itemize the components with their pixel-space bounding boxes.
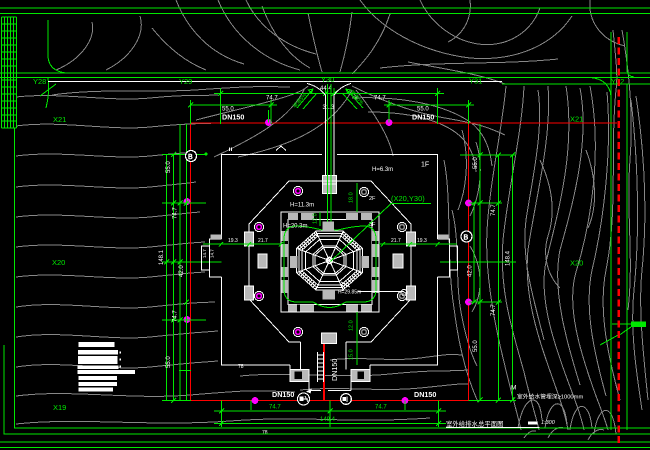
svg-text:室外给排水总平面图: 室外给排水总平面图 bbox=[446, 419, 504, 428]
svg-text:74.7: 74.7 bbox=[173, 310, 179, 322]
svg-text:Y29: Y29 bbox=[179, 77, 192, 86]
svg-text:149.4: 149.4 bbox=[320, 417, 336, 423]
svg-text:74.7: 74.7 bbox=[375, 405, 387, 411]
svg-text:Y28: Y28 bbox=[33, 77, 46, 86]
svg-text:78: 78 bbox=[262, 430, 268, 436]
svg-text:B: B bbox=[464, 235, 469, 242]
svg-text:148.4: 148.4 bbox=[506, 250, 512, 266]
svg-text:2F: 2F bbox=[369, 196, 376, 202]
svg-text:X19: X19 bbox=[53, 403, 66, 412]
svg-text:74.7: 74.7 bbox=[491, 304, 497, 316]
svg-text:12.0: 12.0 bbox=[313, 213, 319, 224]
svg-text:42.0: 42.0 bbox=[468, 265, 474, 277]
svg-text:DN150: DN150 bbox=[222, 113, 244, 122]
svg-text:X20: X20 bbox=[570, 259, 583, 268]
svg-text:148.1: 148.1 bbox=[159, 249, 165, 265]
svg-text:1:300: 1:300 bbox=[541, 420, 556, 426]
svg-text:19.3: 19.3 bbox=[228, 238, 238, 244]
svg-text:H=11.3m: H=11.3m bbox=[290, 203, 314, 209]
svg-text:55.0: 55.0 bbox=[166, 161, 172, 173]
svg-text:X20: X20 bbox=[52, 258, 65, 267]
svg-text:74.7: 74.7 bbox=[374, 96, 386, 102]
svg-text:Y30: Y30 bbox=[321, 75, 334, 84]
svg-text:42.0: 42.0 bbox=[179, 265, 185, 277]
svg-text:X21: X21 bbox=[53, 115, 66, 124]
svg-text:室外给水管埋深≥1000mm: 室外给水管埋深≥1000mm bbox=[517, 393, 583, 401]
svg-text:1F: 1F bbox=[421, 162, 429, 169]
svg-text:Y31: Y31 bbox=[469, 77, 482, 86]
svg-text:12.0: 12.0 bbox=[349, 320, 355, 331]
svg-text:(X20,Y30): (X20,Y30) bbox=[391, 194, 425, 203]
svg-text:19.3: 19.3 bbox=[417, 238, 427, 244]
svg-text:55.0: 55.0 bbox=[417, 107, 429, 113]
svg-text:74.7: 74.7 bbox=[269, 405, 281, 411]
svg-text:74.7: 74.7 bbox=[173, 207, 179, 219]
svg-text:14.7: 14.7 bbox=[202, 249, 207, 258]
svg-text:55.0: 55.0 bbox=[166, 356, 172, 368]
svg-text:21.7: 21.7 bbox=[391, 238, 401, 244]
svg-text:31.3: 31.3 bbox=[323, 105, 335, 111]
svg-text:74.7: 74.7 bbox=[491, 204, 497, 216]
svg-text:55.0: 55.0 bbox=[473, 340, 479, 352]
svg-text:18.0: 18.0 bbox=[349, 192, 355, 203]
svg-text:14.7: 14.7 bbox=[210, 249, 215, 258]
svg-text:74.7: 74.7 bbox=[266, 96, 278, 102]
svg-text:X21: X21 bbox=[570, 115, 583, 124]
svg-text:DN150: DN150 bbox=[414, 390, 436, 399]
svg-text:55.0: 55.0 bbox=[473, 157, 479, 169]
svg-text:H=29.85m: H=29.85m bbox=[338, 290, 361, 296]
svg-text:H=6.3m: H=6.3m bbox=[372, 167, 393, 173]
svg-text:DN150: DN150 bbox=[272, 390, 294, 399]
svg-text:DN150: DN150 bbox=[330, 359, 339, 381]
svg-text:DN150: DN150 bbox=[412, 113, 434, 122]
svg-text:M: M bbox=[511, 385, 516, 392]
svg-text:B: B bbox=[188, 154, 193, 161]
svg-text:21.7: 21.7 bbox=[258, 238, 268, 244]
svg-text:H=20.3m: H=20.3m bbox=[283, 224, 308, 230]
svg-text:55.0: 55.0 bbox=[222, 107, 234, 113]
svg-text:15.0: 15.0 bbox=[349, 349, 355, 360]
